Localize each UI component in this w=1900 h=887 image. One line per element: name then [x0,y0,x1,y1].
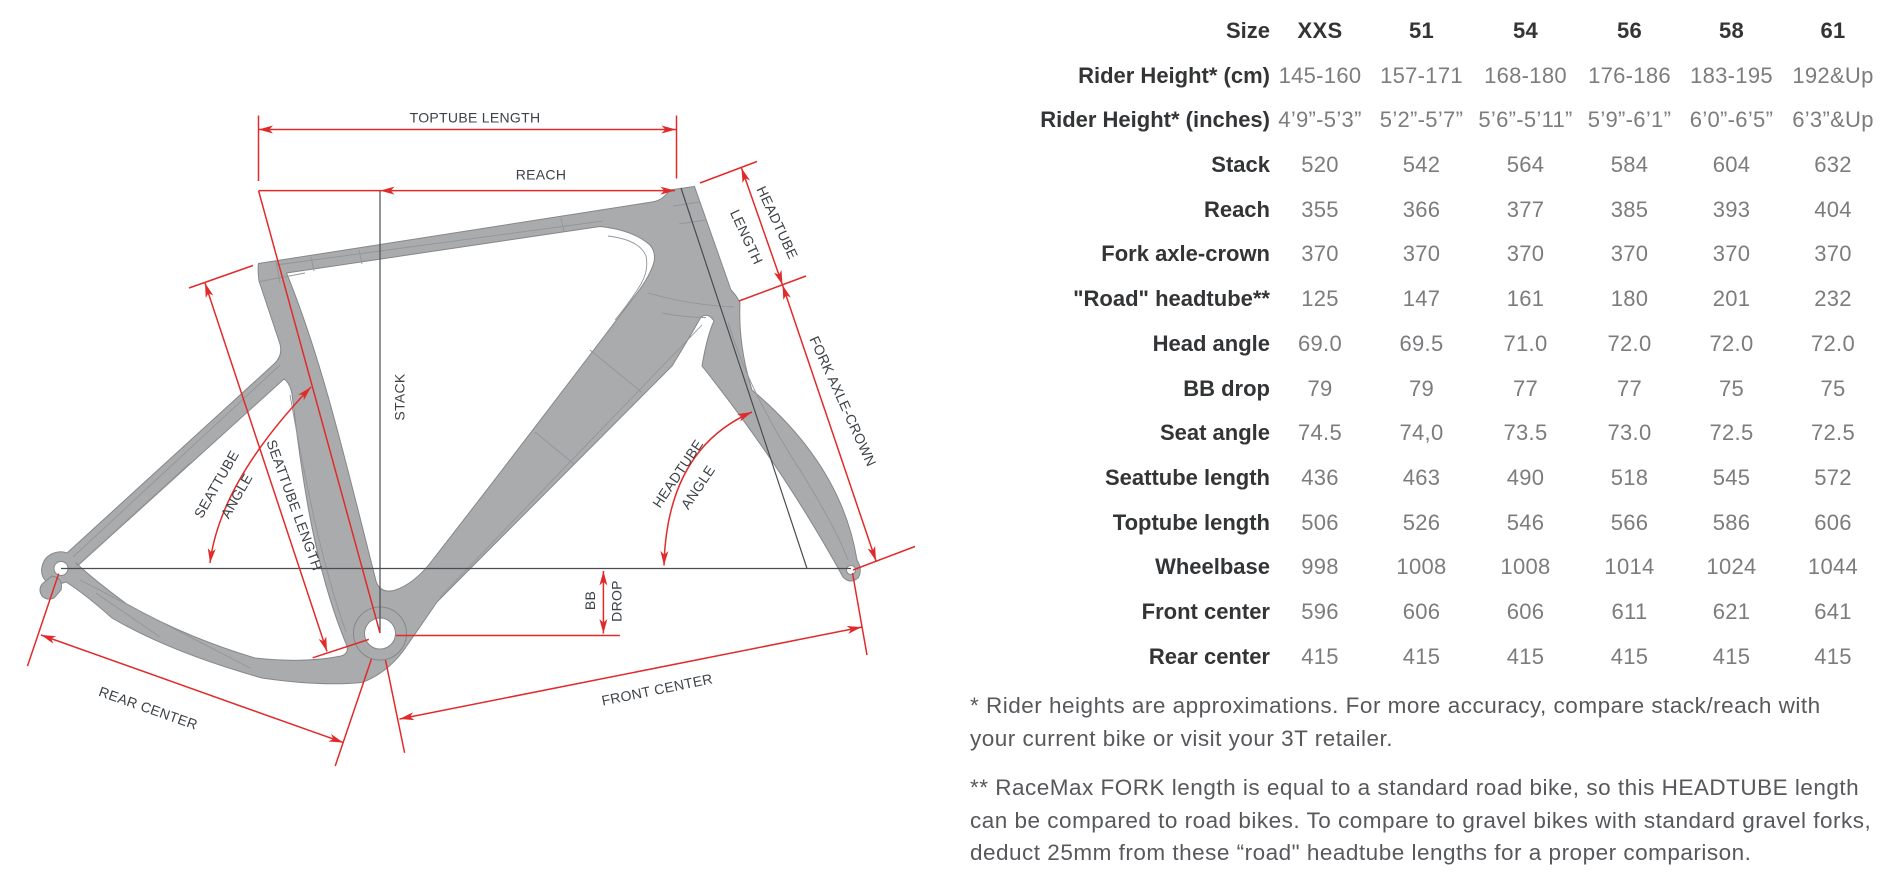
svg-text:REACH: REACH [516,167,567,183]
svg-text:LENGTH: LENGTH [727,207,766,267]
svg-text:DROP: DROP [609,580,625,622]
svg-text:BB: BB [582,591,598,610]
svg-text:REAR CENTER: REAR CENTER [97,683,200,732]
svg-text:STACK: STACK [392,373,408,420]
svg-text:TOPTUBE LENGTH: TOPTUBE LENGTH [410,110,541,126]
svg-text:FORK AXLE-CROWN: FORK AXLE-CROWN [806,334,879,469]
